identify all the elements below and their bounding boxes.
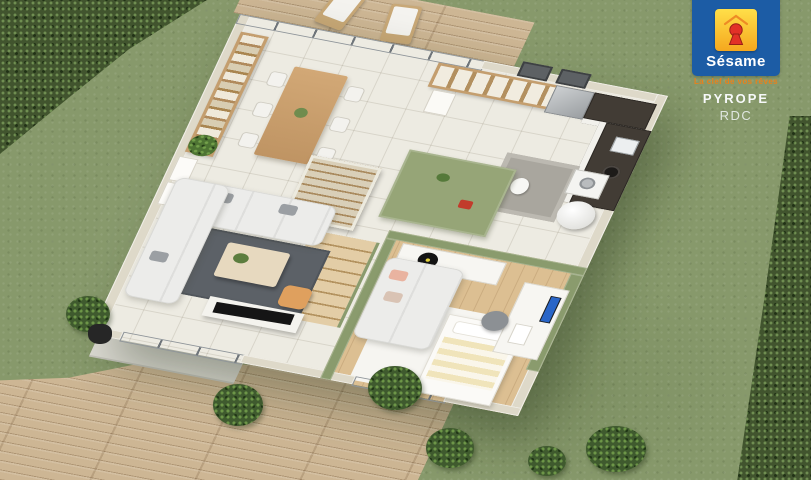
garden-bush	[528, 446, 566, 476]
brand-panel: MAISONS Sésame La clef de vos rêves PYRO…	[692, 0, 780, 76]
red-object	[457, 199, 474, 209]
garden-bush	[368, 366, 422, 410]
gray-cushion	[277, 203, 299, 216]
sun-lounger	[379, 3, 423, 44]
logo-tagline: La clef de vos rêves	[680, 77, 792, 86]
kitchen-sink	[610, 137, 640, 156]
floorplan-render: MAISONS Sésame La clef de vos rêves PYRO…	[0, 0, 811, 480]
maisons-text-cropped: MAISONS	[692, 0, 780, 6]
sun-lounger	[313, 0, 367, 31]
garden-bush	[586, 426, 646, 472]
keyhole-badge	[715, 9, 757, 51]
keyboard	[507, 323, 533, 345]
model-name: PYROPE	[680, 91, 792, 106]
garden-bush	[426, 428, 474, 468]
table-centerpiece	[292, 107, 309, 119]
floor-label: RDC	[680, 108, 792, 123]
hedge-right	[714, 116, 811, 480]
beige-cushion	[382, 291, 404, 304]
washer-door	[577, 176, 597, 190]
house-plan	[90, 14, 668, 416]
black-plant-pot	[88, 324, 112, 344]
logo-wordmark: Sésame	[692, 53, 780, 70]
keyhole-under-roof-icon	[715, 9, 757, 51]
gray-cushion	[148, 250, 170, 263]
sesame-logo: MAISONS Sésame	[692, 0, 780, 76]
garden-bush	[213, 384, 263, 426]
table-plant	[231, 252, 250, 264]
pink-cushion	[388, 269, 410, 282]
island-plant	[435, 172, 452, 182]
